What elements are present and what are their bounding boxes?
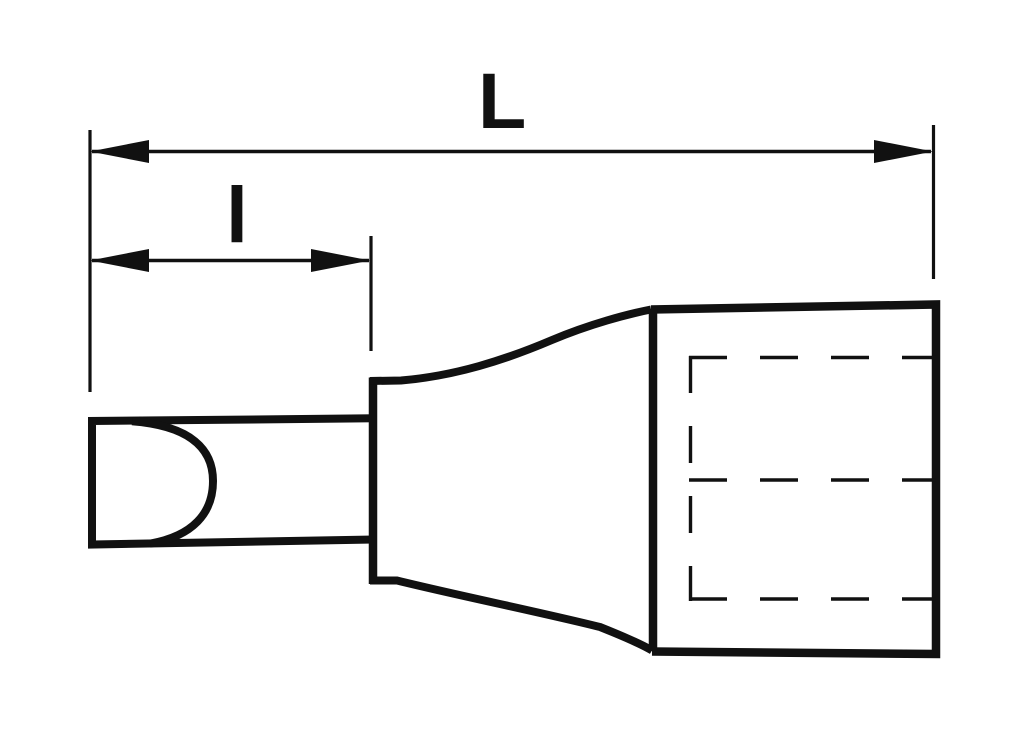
svg-text:l: l (226, 170, 248, 259)
svg-text:L: L (478, 56, 526, 145)
